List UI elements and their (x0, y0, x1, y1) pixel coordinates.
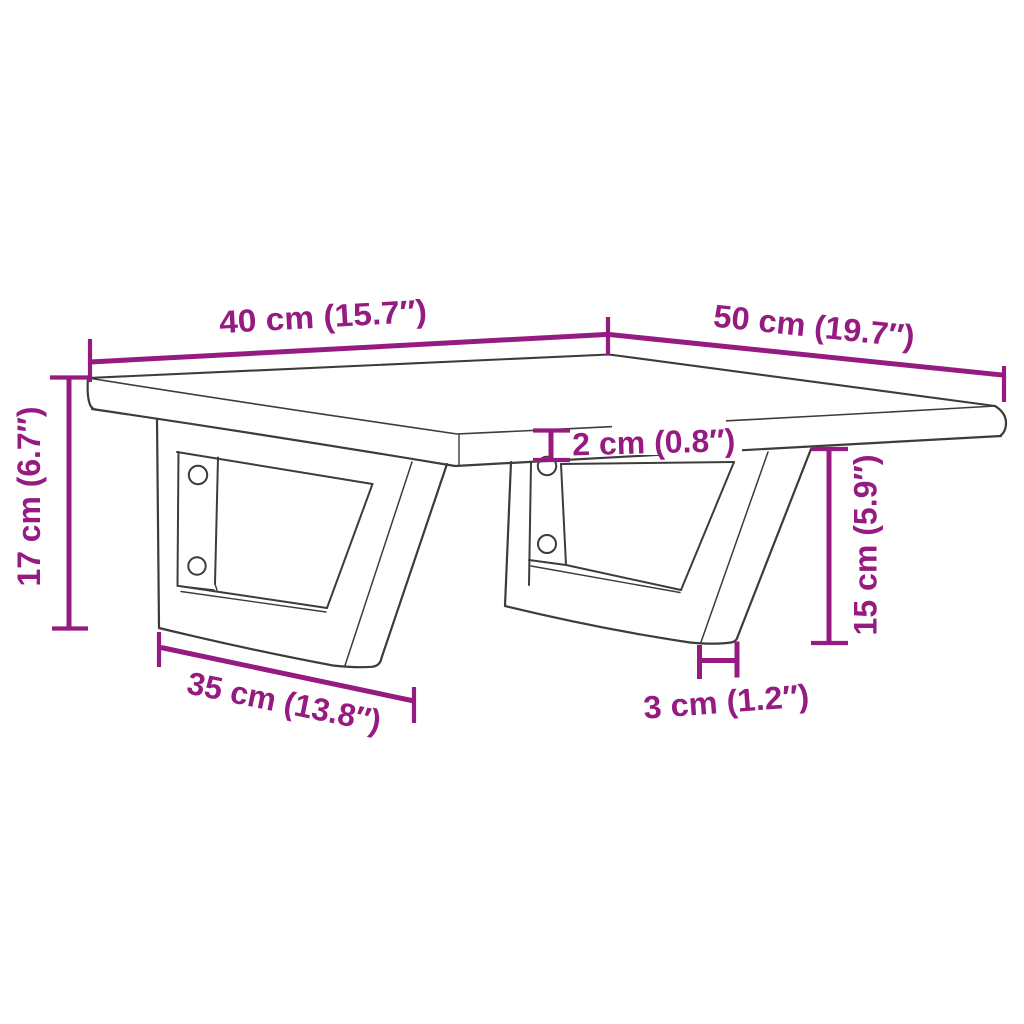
svg-text:2 cm (0.8″): 2 cm (0.8″) (572, 422, 736, 462)
svg-text:40 cm (15.7″): 40 cm (15.7″) (218, 293, 428, 341)
svg-text:3 cm (1.2″): 3 cm (1.2″) (642, 677, 810, 725)
svg-text:17 cm (6.7″): 17 cm (6.7″) (11, 407, 47, 587)
svg-text:15 cm (5.9″): 15 cm (5.9″) (848, 455, 884, 636)
